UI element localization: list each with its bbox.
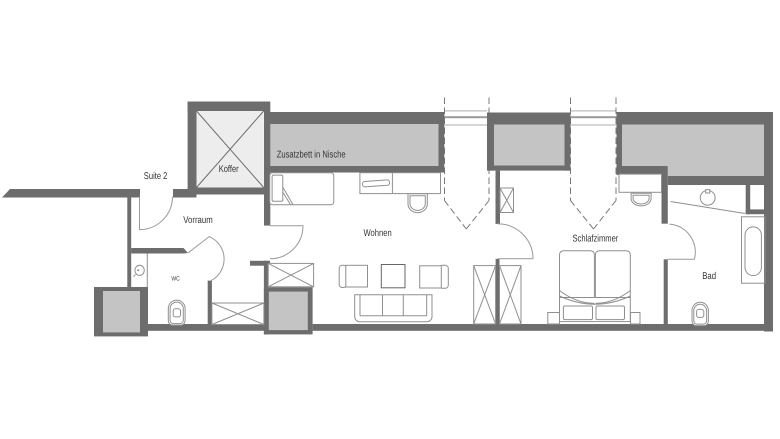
svg-text:WC: WC <box>171 276 180 283</box>
svg-text:Koffer: Koffer <box>219 164 240 175</box>
svg-text:Wohnen: Wohnen <box>364 228 392 239</box>
svg-text:Vorraum: Vorraum <box>183 215 212 226</box>
svg-text:Zusatzbett in Nische: Zusatzbett in Nische <box>277 150 346 161</box>
svg-text:Bad: Bad <box>702 271 716 282</box>
svg-text:Suite 2: Suite 2 <box>144 171 168 182</box>
svg-text:Schlafzimmer: Schlafzimmer <box>573 234 619 245</box>
